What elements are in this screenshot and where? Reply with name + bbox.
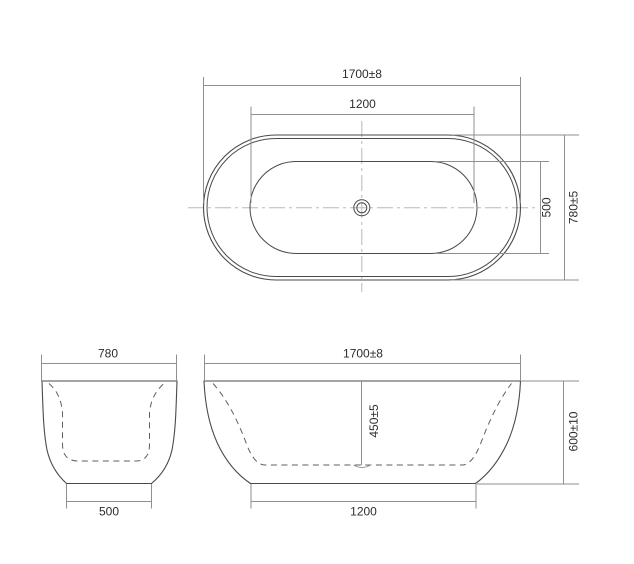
dimension-label: 1200 xyxy=(350,505,377,519)
shell-right-profile xyxy=(476,381,521,484)
dim-end-overall-width: 780 xyxy=(42,347,177,382)
dim-end-base-width: 500 xyxy=(67,484,152,519)
dim-front-base-length: 1200 xyxy=(251,484,476,519)
dim-front-overall-length: 1700±8 xyxy=(205,347,521,382)
dim-front-inner-depth: 450±5 xyxy=(362,381,382,465)
dimension-label: 500 xyxy=(540,197,554,217)
bathtub-drawing-canvas: 1700±8 1200 500 780±5 xyxy=(0,0,634,564)
dimension-label: 1700±8 xyxy=(343,347,383,361)
dimension-label: 780±5 xyxy=(567,191,581,225)
interior-hidden-profile xyxy=(49,384,164,462)
end-view: 780 500 xyxy=(42,347,178,519)
shell-left-profile xyxy=(204,381,251,484)
dimension-label: 1700±8 xyxy=(342,67,382,81)
dimension-label: 1200 xyxy=(349,97,376,111)
dimension-label: 500 xyxy=(99,505,119,519)
dim-front-overall-height: 600±10 xyxy=(477,381,581,484)
dim-top-inner-length: 1200 xyxy=(251,97,474,203)
interior-hidden-profile xyxy=(213,384,512,466)
dimension-label: 450±5 xyxy=(367,404,381,438)
dimension-label: 600±10 xyxy=(567,411,581,451)
top-view: 1700±8 1200 500 780±5 xyxy=(188,67,581,292)
dimension-label: 780 xyxy=(98,347,118,361)
shell-right-profile xyxy=(152,381,178,484)
technical-drawing-page: 1700±8 1200 500 780±5 xyxy=(0,0,634,564)
front-view: 1700±8 450±5 600±10 1200 xyxy=(204,347,581,519)
